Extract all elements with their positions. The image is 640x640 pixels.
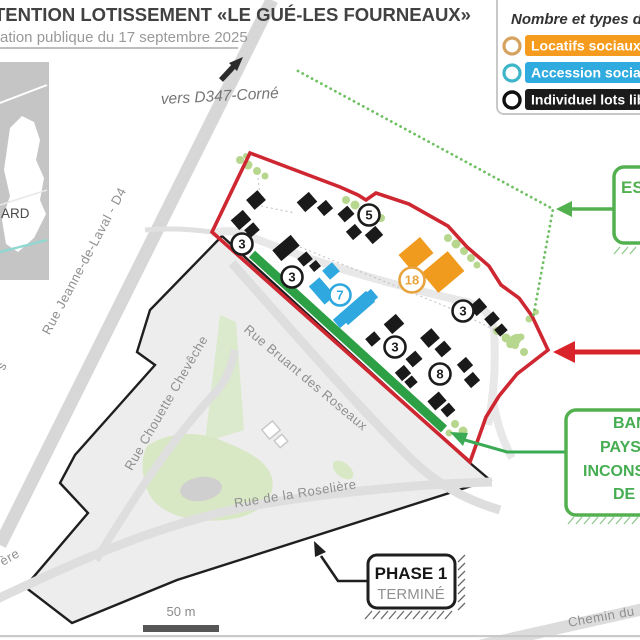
map-svg: ARD <box>0 0 640 640</box>
phase1-title: PHASE 1 <box>375 564 448 583</box>
legend-label-accession: Accession sociale <box>531 65 640 81</box>
legend-title: Nombre et types d <box>511 11 640 28</box>
road-access <box>145 229 211 232</box>
svg-text:18: 18 <box>405 273 419 288</box>
minimap: ARD <box>0 62 49 280</box>
svg-text:3: 3 <box>288 270 295 285</box>
svg-text:3: 3 <box>391 340 398 355</box>
minimap-town-label: ARD <box>1 206 30 221</box>
lot-count-3a: 3 <box>232 234 253 255</box>
legend: Nombre et types d Locatifs sociaux Acces… <box>497 0 640 114</box>
legend-ring-orange-icon <box>504 38 520 54</box>
svg-text:7: 7 <box>336 288 343 303</box>
page-subtitle: ation publique du 17 septembre 2025 <box>0 29 248 46</box>
lot-count-3b: 3 <box>282 267 303 288</box>
bande-label-4: DE <box>613 486 636 503</box>
scale-label: 50 m <box>167 604 196 619</box>
legend-ring-black-icon <box>504 92 520 108</box>
svg-text:3: 3 <box>459 304 466 319</box>
svg-text:8: 8 <box>436 367 443 382</box>
plan-screenshot: { "header": { "title": "TENTION LOTISSEM… <box>0 0 640 640</box>
page-title: TENTION LOTISSEMENT «LE GUÉ-LES FOURNEAU… <box>0 4 471 25</box>
lot-count-3c: 3 <box>453 301 474 322</box>
svg-text:5: 5 <box>365 208 372 223</box>
lot-count-8: 8 <box>430 364 451 385</box>
legend-label-locatifs: Locatifs sociaux <box>531 38 640 54</box>
legend-ring-blue-icon <box>504 65 520 81</box>
bande-label-2: PAYSA <box>600 439 640 456</box>
espace-label: ESP <box>621 178 640 197</box>
lot-count-18: 18 <box>400 268 425 293</box>
lot-count-5: 5 <box>359 205 380 226</box>
phase1-status: TERMINÉ <box>377 586 445 603</box>
lot-count-7: 7 <box>330 285 351 306</box>
legend-label-individuel: Individuel lots libr <box>531 92 640 108</box>
bottom-divider <box>0 635 640 637</box>
bande-label-1: BAN <box>613 415 640 432</box>
bande-label-3: INCONSTR <box>583 463 640 480</box>
svg-text:3: 3 <box>238 237 245 252</box>
lot-count-3d: 3 <box>385 337 406 358</box>
